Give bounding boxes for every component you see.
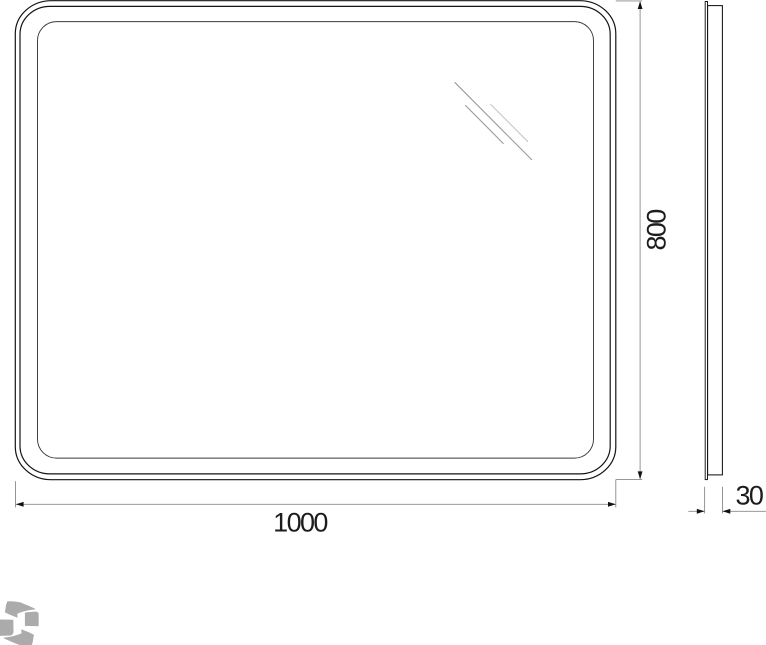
svg-text:30: 30: [735, 481, 762, 511]
svg-text:1000: 1000: [273, 508, 327, 538]
svg-text:800: 800: [641, 210, 671, 251]
